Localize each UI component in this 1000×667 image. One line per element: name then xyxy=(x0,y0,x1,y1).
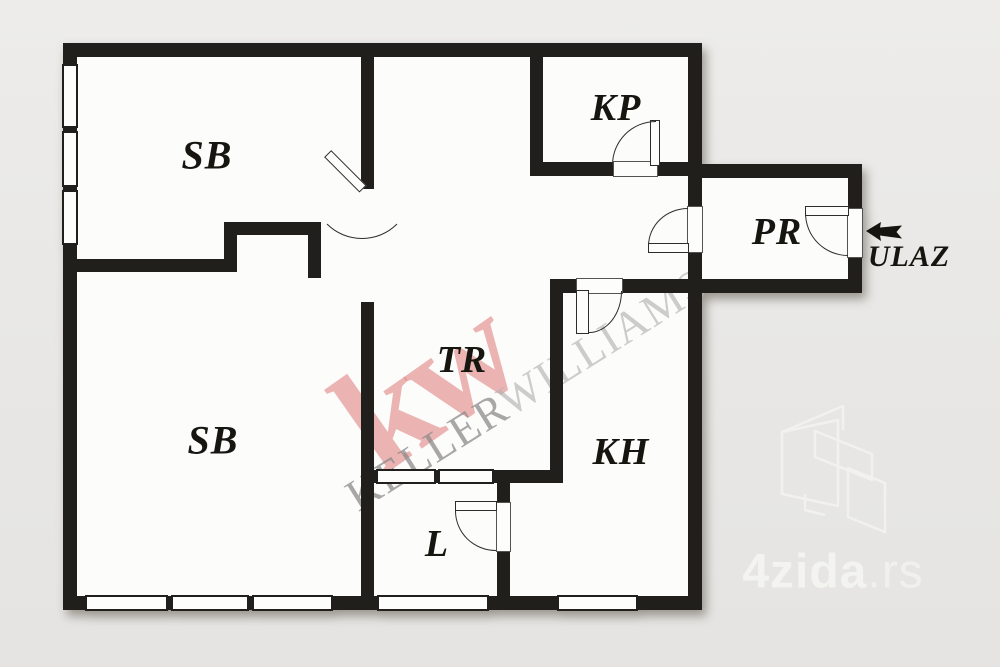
window-bottom-1 xyxy=(85,595,168,611)
window-tr-1 xyxy=(376,469,436,484)
room-label-tr: TR xyxy=(437,338,488,382)
window-bottom-3 xyxy=(252,595,333,611)
wall-sb-step-top xyxy=(224,222,321,235)
room-label-sb-bottom: SB xyxy=(188,417,239,464)
window-bottom-l xyxy=(377,595,489,611)
room-label-pr: PR xyxy=(752,210,803,254)
wall-hall-lower xyxy=(361,302,374,610)
floorplan-screenshot: 4zida.rs kw KELLERWILLIAMS. xyxy=(0,0,1000,667)
window-left-2 xyxy=(62,131,78,187)
door-arc-sb-top xyxy=(312,139,412,239)
door-opening-hall-pr xyxy=(687,206,703,253)
room-label-kp: KP xyxy=(591,86,642,130)
room-label-sb-top: SB xyxy=(182,132,233,179)
door-leaf-l xyxy=(455,501,497,511)
window-left-3 xyxy=(62,190,78,245)
wall-stub xyxy=(308,222,321,278)
wall-sb-divider xyxy=(63,259,237,272)
window-bottom-2 xyxy=(171,595,249,611)
wall-top xyxy=(63,43,702,57)
window-left-1 xyxy=(62,64,78,128)
wall-pr-top xyxy=(688,164,862,178)
room-label-l: L xyxy=(425,522,449,566)
door-leaf-kh xyxy=(576,290,589,334)
window-bottom-kh xyxy=(557,595,638,611)
room-label-kh: KH xyxy=(593,430,650,474)
wall-left xyxy=(63,43,77,610)
wall-right xyxy=(688,43,702,610)
door-opening-l xyxy=(496,502,511,552)
entrance-label: ULAZ xyxy=(868,240,950,274)
door-opening-entrance xyxy=(847,208,863,258)
window-tr-2 xyxy=(438,469,494,484)
wall-tr-kh-divider xyxy=(550,279,563,483)
floorplan: kw KELLERWILLIAMS. xyxy=(0,0,1000,667)
wall-kp-left xyxy=(530,57,543,176)
